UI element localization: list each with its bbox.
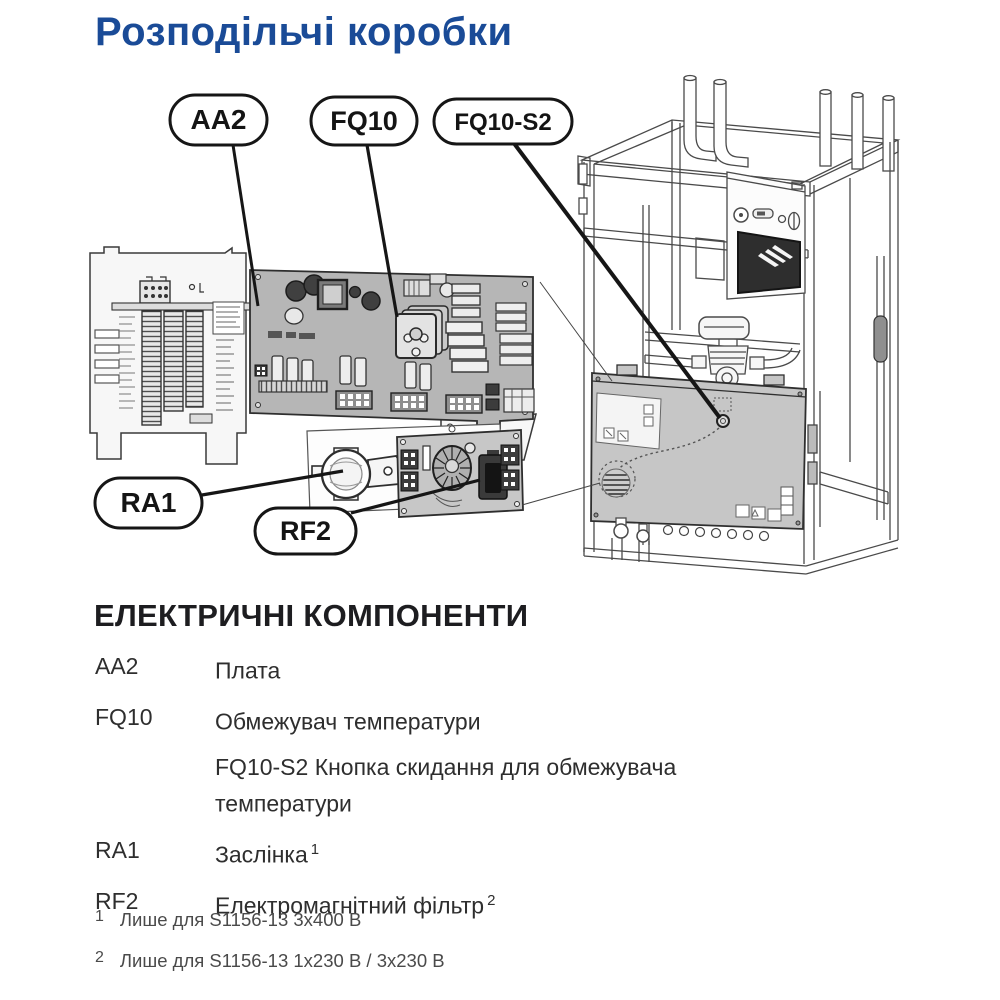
footnote-text: Лише для S1156-13 3x400 В xyxy=(120,906,361,934)
component-row: RA1 Заслінка1 xyxy=(95,834,915,871)
footnote-text: Лише для S1156-13 1x230 В / 3x230 В xyxy=(120,947,445,975)
component-desc: Заслінка1 xyxy=(215,834,319,871)
callout-fq10-label: FQ10 xyxy=(330,106,398,136)
callout-fq10-s2: FQ10-S2 xyxy=(434,99,572,144)
callout-fq10-s2-label: FQ10-S2 xyxy=(454,109,551,136)
wiring-terminal-panel xyxy=(90,247,272,464)
component-term: FQ10 xyxy=(95,701,215,738)
callout-aa2: AA2 xyxy=(170,95,267,145)
footnote: 2 Лише для S1156-13 1x230 В / 3x230 В xyxy=(95,947,445,975)
component-term: RA1 xyxy=(95,834,215,871)
component-row: FQ10 Обмежувач температури xyxy=(95,701,915,738)
component-term xyxy=(95,751,215,820)
heat-pump-unit xyxy=(578,76,898,575)
page-title: Розподільчі коробки xyxy=(95,6,513,58)
callout-ra1: RA1 xyxy=(95,478,202,528)
footnotes: 1 Лише для S1156-13 3x400 В 2 Лише для S… xyxy=(95,906,445,988)
component-desc: Обмежувач температури xyxy=(215,701,484,738)
callout-ra1-label: RA1 xyxy=(120,487,176,518)
component-desc: Плата xyxy=(215,650,283,687)
rf2-filter-board xyxy=(397,430,523,517)
section-heading: ЕЛЕКТРИЧНІ КОМПОНЕНТИ xyxy=(94,598,528,634)
components-list: AA2 Плата FQ10 Обмежувач температури FQ1… xyxy=(95,650,915,935)
footnote: 1 Лише для S1156-13 3x400 В xyxy=(95,906,445,934)
callout-rf2: RF2 xyxy=(255,508,356,554)
callout-fq10: FQ10 xyxy=(311,97,417,145)
component-term: AA2 xyxy=(95,650,215,687)
component-row: FQ10-S2 Кнопка скидання для обмежувача т… xyxy=(95,751,915,820)
distribution-boxes-diagram: AA2 FQ10 FQ10-S2 RA1 RF2 xyxy=(0,60,1000,590)
callout-aa2-label: AA2 xyxy=(190,104,246,135)
control-panel xyxy=(696,172,805,299)
vent-grille xyxy=(602,469,630,497)
callout-rf2-label: RF2 xyxy=(280,516,331,546)
fq10-temperature-limiter xyxy=(396,306,448,358)
footnote-number: 1 xyxy=(95,906,104,928)
component-desc: FQ10-S2 Кнопка скидання для обмежувача т… xyxy=(215,751,735,820)
component-row: AA2 Плата xyxy=(95,650,915,687)
footnote-number: 2 xyxy=(95,947,104,969)
